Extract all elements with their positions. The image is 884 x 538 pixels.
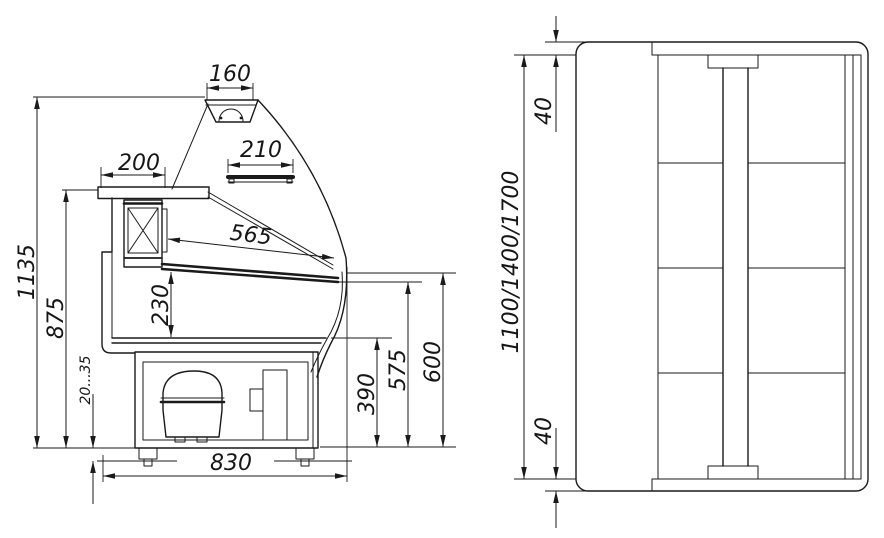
dim-end-wall-top: 40 xyxy=(532,16,557,132)
dim-well-depth-label: 230 xyxy=(149,284,174,326)
dim-shelf-depth: 210 xyxy=(228,138,293,165)
dim-canopy-width: 160 xyxy=(207,62,253,88)
case-outline xyxy=(576,42,868,491)
dim-canopy-width-label: 160 xyxy=(209,62,251,87)
dim-overall-height: 1135 xyxy=(15,97,40,448)
lamp-screw-right xyxy=(240,117,243,120)
worktop xyxy=(98,187,209,199)
lamp-canopy xyxy=(205,100,258,122)
dim-front-height-label: 600 xyxy=(421,341,446,383)
dim-deck-length: 565 xyxy=(168,221,334,258)
dim-length-variants-label: 1100/1400/1700 xyxy=(499,171,524,354)
well-bottom xyxy=(112,338,326,343)
dim-overall-depth-label: 830 xyxy=(210,451,252,476)
dim-base-front-height: 390 xyxy=(355,338,380,447)
dim-deck-length-label: 565 xyxy=(228,221,273,251)
rear-glass-line xyxy=(172,104,208,189)
dim-worktop-height-label: 875 xyxy=(44,297,69,339)
dim-end-wall-bottom-label: 40 xyxy=(532,417,557,445)
dim-length-variants: 1100/1400/1700 xyxy=(499,55,524,479)
dim-shelf-depth-label: 210 xyxy=(240,138,282,163)
center-pillar xyxy=(708,55,758,479)
display-case-drawing: 160 200 210 565 230 1135 875 xyxy=(0,0,884,538)
electrical-panel xyxy=(263,370,287,440)
display-deck xyxy=(162,264,338,282)
dim-end-wall-bottom: 40 xyxy=(532,417,557,528)
technical-drawing-page: 160 200 210 565 230 1135 875 xyxy=(0,0,884,538)
dim-well-depth: 230 xyxy=(149,272,174,337)
dim-rear-top-depth: 200 xyxy=(101,151,165,176)
dim-end-wall-top-label: 40 xyxy=(532,97,557,125)
lamp-screw-left xyxy=(220,117,223,120)
side-section-view: 160 200 210 565 230 1135 875 xyxy=(15,62,456,504)
evaporator-box xyxy=(124,200,167,267)
dim-overall-depth: 830 xyxy=(103,451,347,476)
dim-base-front-height-label: 390 xyxy=(355,373,380,415)
dim-glass-lower-edge-height-label: 575 xyxy=(386,349,411,391)
plan-view: 1100/1400/1700 40 40 xyxy=(499,16,868,528)
dim-worktop-height: 875 xyxy=(44,190,69,448)
dim-overall-height-label: 1135 xyxy=(15,244,40,300)
dim-front-height: 600 xyxy=(421,273,446,447)
machine-compartment xyxy=(135,352,318,448)
air-duct xyxy=(162,209,167,252)
dim-rear-top-depth-label: 200 xyxy=(118,151,160,176)
dim-glass-lower-edge-height: 575 xyxy=(386,282,411,447)
compressor xyxy=(161,371,224,442)
dim-leg-height: 20...35 xyxy=(78,355,94,504)
dim-leg-height-label: 20...35 xyxy=(78,355,94,404)
rear-panel xyxy=(102,198,135,353)
glass-shelf xyxy=(228,177,293,183)
shelf-joint-lines xyxy=(658,163,845,373)
switch-box xyxy=(250,389,263,411)
